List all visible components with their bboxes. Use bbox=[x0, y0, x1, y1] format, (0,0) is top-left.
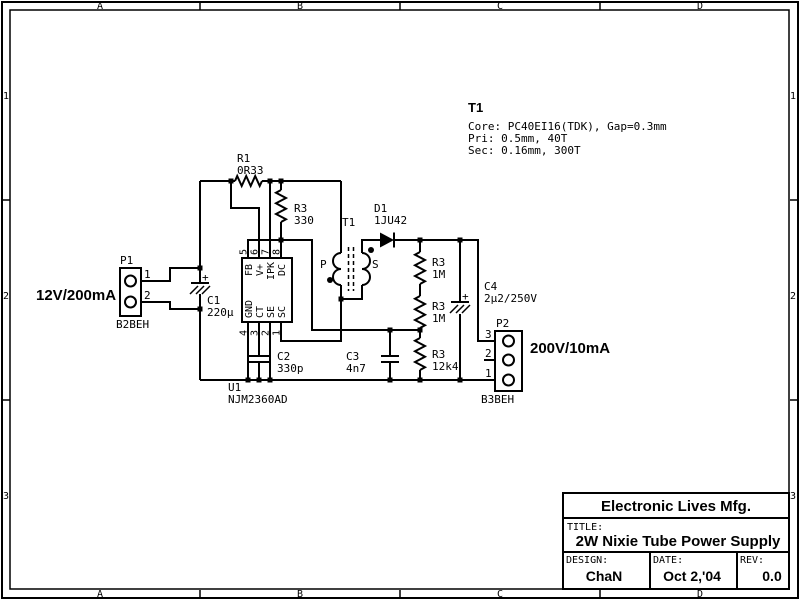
frame-row-1-left: 1 bbox=[3, 91, 9, 102]
frame-row-2-right: 2 bbox=[790, 291, 796, 302]
frame-col-d-bottom: D bbox=[697, 589, 703, 600]
frame-col-d-top: D bbox=[697, 1, 703, 12]
t1-note: T1 Core: PC40EI16(TDK), Gap=0.3mm Pri: 0… bbox=[468, 100, 667, 157]
r330-zigzag bbox=[276, 190, 286, 222]
frame-col-c-bottom: C bbox=[497, 589, 503, 600]
r1-zigzag bbox=[235, 176, 262, 186]
capacitor-c1: + C1 220μ bbox=[190, 271, 234, 319]
ic-pin1-name: SC bbox=[277, 306, 288, 318]
design-label: DESIGN: bbox=[566, 555, 608, 566]
t1-primary-winding bbox=[333, 253, 341, 285]
wire-p1-pin2 bbox=[141, 302, 200, 309]
c1-plate-hatched bbox=[190, 286, 210, 294]
c4-polarity: + bbox=[462, 290, 469, 303]
junction bbox=[279, 238, 284, 243]
p2-ref: P2 bbox=[496, 317, 509, 330]
frame-col-b-bottom: B bbox=[297, 589, 303, 600]
junction bbox=[268, 179, 273, 184]
junction bbox=[418, 378, 423, 383]
frame-col-b-top: B bbox=[297, 1, 303, 12]
junction bbox=[229, 179, 234, 184]
ic-pin2-num: 2 bbox=[261, 330, 272, 336]
ic-pin4-num: 4 bbox=[239, 330, 250, 336]
p2-body bbox=[495, 331, 522, 391]
t1-core bbox=[349, 247, 354, 291]
frame-row-1-right: 1 bbox=[790, 91, 796, 102]
ic-pin5-name: FB bbox=[244, 264, 255, 276]
junction bbox=[418, 328, 423, 333]
c3-value: 4n7 bbox=[346, 362, 366, 375]
p1-pin1-circle bbox=[125, 276, 136, 287]
frame-col-a-top: A bbox=[97, 1, 103, 12]
junction bbox=[418, 238, 423, 243]
resistor-r330: R3 330 bbox=[276, 190, 314, 227]
r12k4-value: 12k4 bbox=[432, 360, 459, 373]
t1-note-line3: Sec: 0.16mm, 300T bbox=[468, 144, 581, 157]
output-rating-label: 200V/10mA bbox=[530, 340, 610, 357]
title-block: Electronic Lives Mfg. TITLE: 2W Nixie Tu… bbox=[563, 493, 789, 589]
r1m-b-zigzag bbox=[415, 296, 425, 328]
junction bbox=[198, 307, 203, 312]
p2-pin3-num: 3 bbox=[485, 328, 492, 341]
revision-number: 0.0 bbox=[762, 568, 782, 584]
junction bbox=[246, 378, 251, 383]
transformer-t1: P S T1 bbox=[320, 216, 379, 291]
p1-pin2-circle bbox=[125, 297, 136, 308]
junction bbox=[458, 238, 463, 243]
junction bbox=[279, 179, 284, 184]
input-rating-label: 12V/200mA bbox=[36, 287, 116, 304]
rev-label: REV: bbox=[740, 555, 764, 566]
resistor-r1: R1 0R33 bbox=[235, 152, 264, 186]
connector-p1: P1 1 2 B2BEH 12V/200mA bbox=[36, 254, 151, 331]
ic-pin6-num: 6 bbox=[250, 249, 261, 255]
company-name: Electronic Lives Mfg. bbox=[601, 498, 751, 515]
frame-row-2-left: 2 bbox=[3, 291, 9, 302]
capacitor-c3: C3 4n7 bbox=[346, 350, 399, 375]
junction bbox=[257, 378, 262, 383]
p1-ref: P1 bbox=[120, 254, 133, 267]
r1m-b-value: 1M bbox=[432, 312, 446, 325]
p1-pin2-num: 2 bbox=[144, 289, 151, 302]
junction bbox=[198, 266, 203, 271]
ic-pin7-name: IPK bbox=[266, 262, 277, 280]
frame-col-a-bottom: A bbox=[97, 589, 103, 600]
junction bbox=[458, 378, 463, 383]
p2-pin2-num: 2 bbox=[485, 347, 492, 360]
ic-pin5-num: 5 bbox=[239, 249, 250, 255]
p2-part: B3BEH bbox=[481, 393, 514, 406]
frame-col-c-top: C bbox=[497, 1, 503, 12]
r1m-a-zigzag bbox=[415, 252, 425, 284]
ic-pin8-num: 8 bbox=[272, 249, 283, 255]
t1-primary-phase-dot bbox=[327, 277, 333, 283]
c4-value: 2μ2/250V bbox=[484, 292, 537, 305]
junction bbox=[388, 378, 393, 383]
ic-pin3-name: CT bbox=[255, 306, 266, 318]
t1-secondary-winding bbox=[362, 253, 370, 285]
ic-pin8-name: DC bbox=[277, 264, 288, 276]
d1-value: 1JU42 bbox=[374, 214, 407, 227]
c3-plates bbox=[381, 356, 399, 362]
ic-pin6-name: V+ bbox=[255, 264, 266, 276]
design-date: Oct 2,'04 bbox=[663, 568, 721, 584]
p1-part: B2BEH bbox=[116, 318, 149, 331]
p2-pin1-num: 1 bbox=[485, 367, 492, 380]
p2-pin3-circle bbox=[503, 336, 514, 347]
t1-ref: T1 bbox=[342, 216, 355, 229]
r1m-a-value: 1M bbox=[432, 268, 446, 281]
ic-pin2-name: SE bbox=[266, 306, 277, 318]
resistor-r1m-b: R3 1M bbox=[415, 296, 446, 328]
capacitor-c4: + C4 2μ2/250V bbox=[450, 280, 537, 313]
t1-secondary-phase-dot bbox=[368, 247, 374, 253]
resistor-r1m-a: R3 1M bbox=[415, 252, 446, 284]
p2-pin1-circle bbox=[503, 375, 514, 386]
r12k4-zigzag bbox=[415, 338, 425, 370]
wire-vplus bbox=[231, 181, 259, 258]
resistor-r12k4: R3 12k4 bbox=[415, 338, 459, 373]
t1-note-title: T1 bbox=[468, 100, 483, 115]
date-label: DATE: bbox=[653, 555, 683, 566]
ic-pin3-num: 3 bbox=[250, 330, 261, 336]
c1-value: 220μ bbox=[207, 306, 234, 319]
schematic-canvas: A B C D A B C D 1 2 3 1 2 3 bbox=[0, 0, 800, 600]
ic-pin7-num: 7 bbox=[261, 249, 272, 255]
capacitor-c2: C2 330p bbox=[249, 350, 304, 375]
c4-plate-hatched bbox=[450, 305, 470, 313]
t1-primary-label: P bbox=[320, 258, 327, 271]
connector-p2: P2 3 2 1 B3BEH 200V/10mA bbox=[481, 317, 610, 406]
ic-pin4-name: GND bbox=[244, 300, 255, 318]
p2-pin2-circle bbox=[503, 355, 514, 366]
c1-polarity: + bbox=[202, 271, 209, 284]
d1-triangle bbox=[380, 233, 394, 248]
schematic-page: A B C D A B C D 1 2 3 1 2 3 bbox=[0, 0, 800, 600]
p1-pin1-num: 1 bbox=[144, 268, 151, 281]
r330-value: 330 bbox=[294, 214, 314, 227]
ic-pin1-num: 1 bbox=[272, 330, 283, 336]
junction bbox=[268, 378, 273, 383]
schematic-title: 2W Nixie Tube Power Supply bbox=[576, 533, 781, 550]
r1-value: 0R33 bbox=[237, 164, 264, 177]
title-label: TITLE: bbox=[567, 522, 603, 533]
c2-plates bbox=[249, 356, 269, 362]
designer-name: ChaN bbox=[586, 568, 623, 584]
junction bbox=[339, 297, 344, 302]
frame-row-3-left: 3 bbox=[3, 491, 9, 502]
ic-part: NJM2360AD bbox=[228, 393, 288, 406]
junction bbox=[388, 328, 393, 333]
frame-row-3-right: 3 bbox=[790, 491, 796, 502]
t1-secondary-label: S bbox=[372, 258, 379, 271]
c2-value: 330p bbox=[277, 362, 304, 375]
